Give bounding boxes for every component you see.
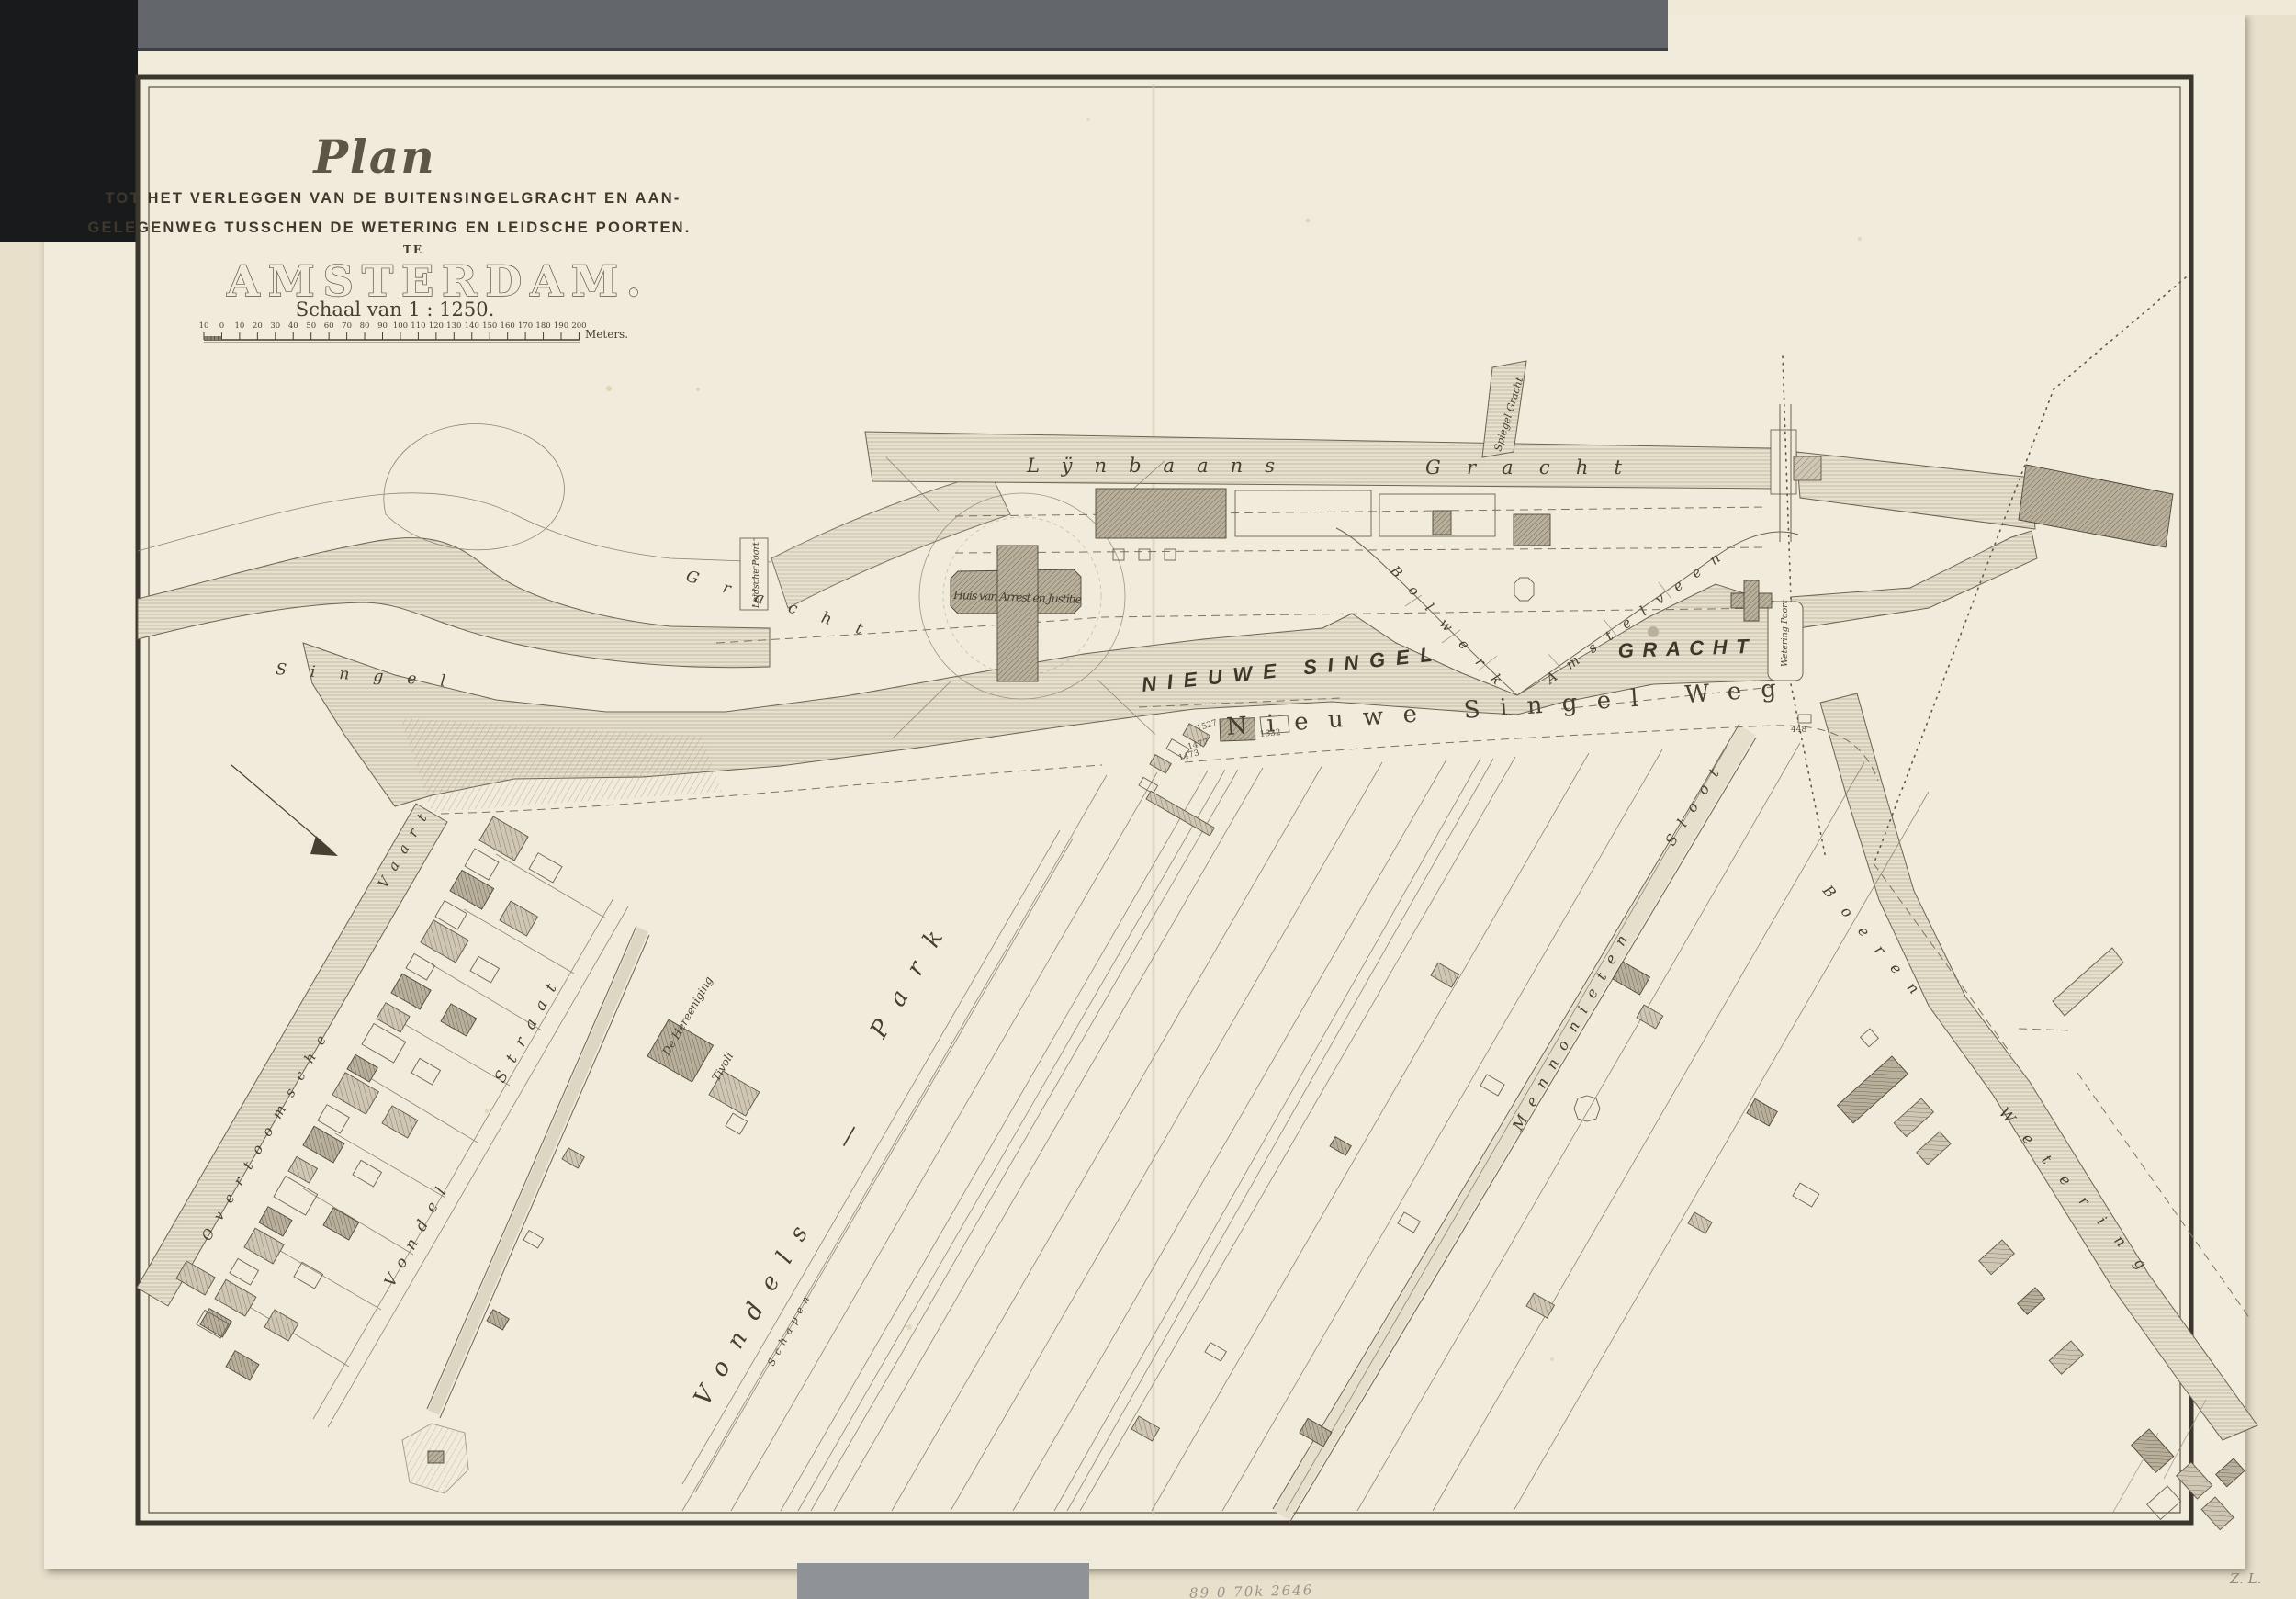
title-line1: TOT HET VERLEGGEN VAN DE BUITENSINGELGRA… <box>105 190 681 207</box>
svg-text:80: 80 <box>360 321 370 331</box>
label-wetering-poort: Wetering Poort <box>1780 600 1790 667</box>
title-te: TE <box>403 243 423 256</box>
svg-text:40: 40 <box>288 321 298 331</box>
svg-text:140: 140 <box>465 321 479 331</box>
map-drawing: Plan TOT HET VERLEGGEN VAN DE BUITENSING… <box>0 0 2296 1599</box>
singelgracht-branch-ne <box>1791 531 2037 629</box>
title-scale-caption: Schaal van 1 : 1250. <box>296 298 495 321</box>
lijnbaans-bridge <box>1771 430 1796 494</box>
scale-bar: 1001020304050607080901001101201301401501… <box>199 321 628 343</box>
north-arrow <box>231 765 338 856</box>
parcel-1473: 1473 <box>1177 749 1200 763</box>
label-vondel: Vondel <box>381 1185 451 1290</box>
svg-text:0: 0 <box>219 321 224 331</box>
parcel-1532: 1532 <box>1259 728 1281 739</box>
rampart-block <box>2019 465 2173 547</box>
pond-bottom-left <box>402 1424 468 1493</box>
lijnbaansgracht-east <box>1796 452 2035 529</box>
svg-text:150: 150 <box>482 321 497 331</box>
svg-text:90: 90 <box>377 321 388 331</box>
svg-text:100: 100 <box>393 321 408 331</box>
title-line2: GELEGENWEG TUSSCHEN DE WETERING EN LEIDS… <box>87 220 691 236</box>
scale-bar-ticks: 1001020304050607080901001101201301401501… <box>199 321 587 340</box>
scale-bar-unit: Meters. <box>585 328 628 341</box>
svg-text:180: 180 <box>535 321 550 331</box>
label-leidsche-poort: Leidsche Poort <box>751 542 761 609</box>
pencil-note: 89 0 70k 2646 <box>1189 1582 1314 1599</box>
svg-text:190: 190 <box>554 321 568 331</box>
svg-text:20: 20 <box>253 321 263 331</box>
svg-text:60: 60 <box>324 321 334 331</box>
label-park: Park <box>865 926 949 1043</box>
svg-text:70: 70 <box>342 321 352 331</box>
svg-text:50: 50 <box>306 321 316 331</box>
svg-text:160: 160 <box>501 321 515 331</box>
svg-text:10: 10 <box>199 321 209 331</box>
parcel-448: 448 <box>1791 726 1806 735</box>
svg-text:170: 170 <box>518 321 533 331</box>
script-title: Plan <box>311 129 435 184</box>
lijnbaansgracht <box>865 432 1774 489</box>
scanned-map-page: Plan TOT HET VERLEGGEN VAN DE BUITENSING… <box>0 0 2296 1599</box>
svg-text:110: 110 <box>411 321 425 331</box>
label-park-dash: — <box>830 1119 866 1154</box>
svg-text:120: 120 <box>429 321 444 331</box>
parcel-1527: 1527 <box>1196 718 1219 734</box>
title-block: Plan TOT HET VERLEGGEN VAN DE BUITENSING… <box>87 129 691 343</box>
svg-text:130: 130 <box>446 321 461 331</box>
label-straat: Straat <box>491 981 561 1087</box>
corner-mark: Z. L. <box>2230 1571 2261 1587</box>
overtoomsche-vaart-canal <box>137 804 447 1306</box>
banks-and-worklines <box>138 277 2250 1319</box>
svg-text:30: 30 <box>270 321 280 331</box>
svg-text:10: 10 <box>234 321 244 331</box>
wetering-branch <box>2053 948 2123 1016</box>
singel-canal <box>138 538 770 668</box>
